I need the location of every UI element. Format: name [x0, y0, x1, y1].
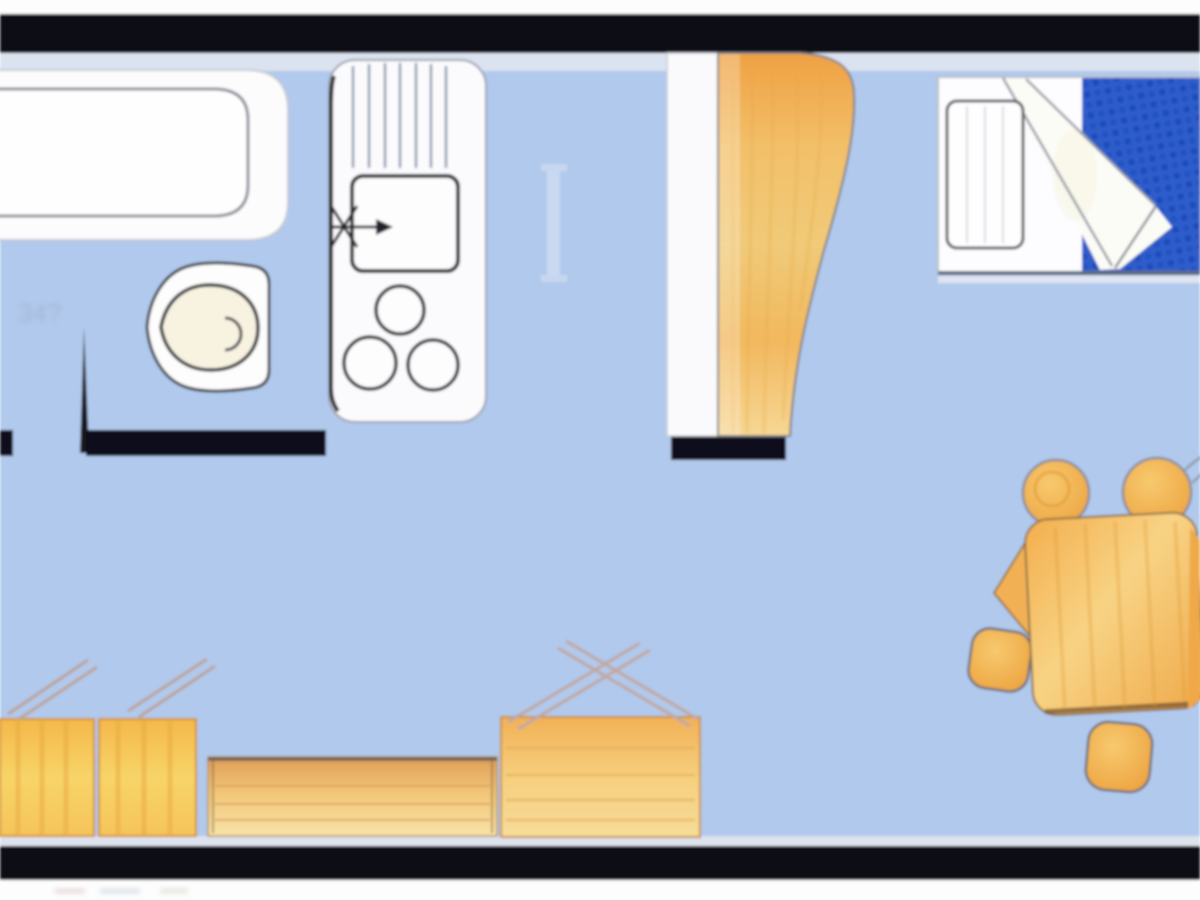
svg-text:34?: 34?: [18, 298, 61, 328]
